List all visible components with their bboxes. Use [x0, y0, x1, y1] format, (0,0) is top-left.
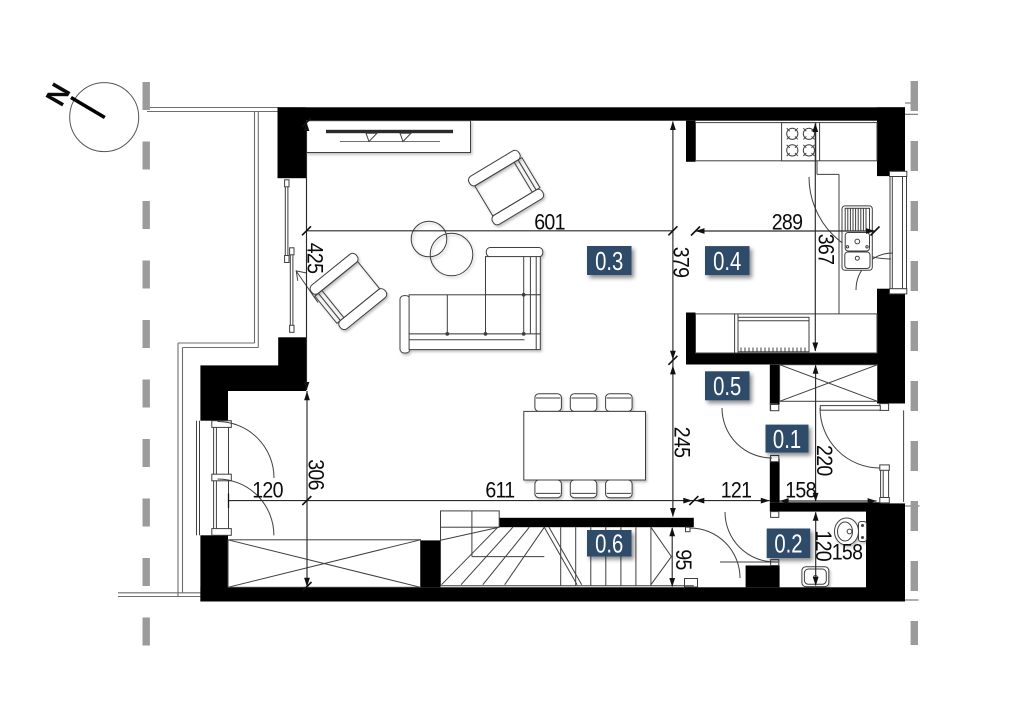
svg-text:0.4: 0.4 [713, 246, 741, 275]
svg-text:611: 611 [485, 478, 514, 503]
svg-text:0.3: 0.3 [595, 246, 623, 275]
svg-text:367: 367 [813, 234, 838, 265]
svg-text:120: 120 [252, 478, 283, 503]
svg-text:601: 601 [534, 210, 565, 235]
svg-text:245: 245 [669, 427, 694, 458]
svg-text:0.6: 0.6 [595, 529, 623, 558]
svg-text:220: 220 [812, 445, 837, 476]
svg-text:121: 121 [721, 478, 752, 503]
svg-text:120: 120 [810, 530, 835, 561]
svg-text:379: 379 [668, 247, 693, 278]
svg-text:158: 158 [832, 540, 863, 565]
svg-text:95: 95 [671, 549, 696, 569]
svg-text:425: 425 [302, 243, 327, 274]
svg-text:0.2: 0.2 [774, 529, 802, 558]
svg-text:0.1: 0.1 [773, 424, 801, 453]
svg-text:0.5: 0.5 [713, 372, 741, 401]
svg-text:306: 306 [303, 459, 328, 490]
svg-text:289: 289 [772, 210, 803, 235]
svg-text:158: 158 [785, 478, 816, 503]
